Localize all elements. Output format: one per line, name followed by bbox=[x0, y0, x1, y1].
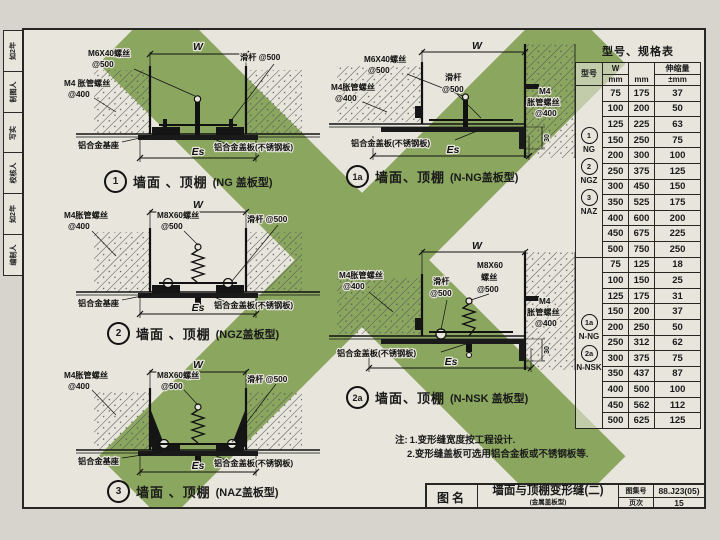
table-cell: 400 bbox=[603, 382, 629, 398]
table-cell: 75 bbox=[655, 132, 701, 148]
anchor-spacing-label: @400 bbox=[68, 90, 90, 99]
title-block-name-label: 图名 bbox=[427, 485, 478, 509]
table-cell: 125 bbox=[629, 257, 655, 273]
caption-type: (N-NG盖板型) bbox=[450, 169, 518, 185]
scanned-atlas-page: 如2年 制图人 写实 校核人 如2年 编制人 bbox=[0, 0, 720, 540]
dim-30-label: 30 bbox=[544, 134, 551, 142]
screw-spacing-label: @500 bbox=[477, 285, 499, 294]
col-header-stretch-label: 伸缩量 bbox=[666, 64, 690, 73]
screw-spacing-label: @500 bbox=[161, 222, 183, 231]
detail-2-drawing: W Es M4胀管螺丝 @400 M8X60螺丝 @500 滑杆 @500 铝合… bbox=[64, 198, 332, 320]
table-cell: 112 bbox=[655, 397, 701, 413]
table-cell: 63 bbox=[655, 117, 701, 133]
table-cell: 37 bbox=[655, 304, 701, 320]
table-cell: 525 bbox=[629, 195, 655, 211]
note-line-2: 2.变形缝盖板可选用铝合金板或不锈钢板等. bbox=[407, 448, 663, 462]
slider-label: 滑杆 bbox=[445, 72, 462, 82]
atlas-row: 图集号 88.J23(05) bbox=[619, 485, 704, 498]
table-cell: 250 bbox=[655, 241, 701, 257]
slider-spacing-label: @500 bbox=[442, 85, 464, 94]
col-header-mm: mm bbox=[629, 63, 655, 86]
cover-label: 铝合金盖板(不锈钢板) bbox=[337, 348, 416, 358]
table-cell: 200 bbox=[629, 101, 655, 117]
table-cell: 200 bbox=[629, 304, 655, 320]
caption-text: 墙面 、顶棚 bbox=[133, 172, 208, 191]
signature-text: 制图人 bbox=[8, 81, 18, 102]
table-cell: 50 bbox=[655, 319, 701, 335]
caption-text: 墙面、顶棚 bbox=[375, 167, 445, 186]
table-cell: 562 bbox=[629, 397, 655, 413]
table-cell: 125 bbox=[603, 288, 629, 304]
table-cell: 150 bbox=[655, 179, 701, 195]
page-number-label: 页次 bbox=[619, 498, 654, 510]
model-code: N-NSK bbox=[576, 363, 602, 372]
caption-text: 墙面 、顶棚 bbox=[136, 482, 211, 501]
table-group-2: 1aN-NG2aN-NSK751251810015025125175311502… bbox=[576, 257, 701, 429]
detail-2a-drawing: W Es 30 M4胀管螺丝 @400 滑杆 @500 M8X60 螺丝 @50… bbox=[329, 242, 584, 380]
cover-label: 铝合金盖板(不锈钢板) bbox=[214, 300, 293, 310]
anchor-left-label: M4胀管螺丝 bbox=[339, 270, 383, 280]
table-cell: 75 bbox=[603, 86, 629, 102]
signature-cell: 制图人 bbox=[4, 72, 22, 113]
table-group-1: 1NG2NGZ3NAZ75175371002005012522563150250… bbox=[576, 86, 701, 258]
table-cell: 75 bbox=[655, 351, 701, 367]
detail-number-badge: 3 bbox=[107, 480, 130, 503]
slider-spacing-label: @500 bbox=[430, 289, 452, 298]
col-header-w-symbol: W bbox=[612, 64, 620, 73]
dim-w-label: W bbox=[193, 41, 204, 53]
table-cell: 250 bbox=[603, 335, 629, 351]
table-cell: 18 bbox=[655, 257, 701, 273]
detail-number-badge: 1a bbox=[346, 165, 369, 188]
model-circle-badge: 1a bbox=[581, 314, 598, 331]
dim-es-label: Es bbox=[192, 146, 205, 158]
table-cell: 75 bbox=[603, 257, 629, 273]
detail-1a-caption: 1a 墙面、顶棚 (N-NG盖板型) bbox=[346, 165, 518, 188]
model-circle-badge: 2a bbox=[581, 345, 598, 362]
detail-number-badge: 1 bbox=[104, 170, 127, 193]
anchor-left-label: M4胀管螺丝 bbox=[331, 82, 375, 92]
table-cell: 250 bbox=[629, 132, 655, 148]
table-cell: 150 bbox=[629, 273, 655, 289]
screw-spacing-label: @500 bbox=[92, 60, 114, 69]
title-block-title-cell: 墙面与顶棚变形缝(二) (金属盖板型) bbox=[478, 485, 619, 509]
notes-prefix: 注: bbox=[395, 434, 408, 448]
table-header-row: 型号 Wmm mm 伸缩量±mm bbox=[576, 63, 701, 86]
detail-number-badge: 2a bbox=[346, 386, 369, 409]
model-code: N-NG bbox=[576, 332, 602, 341]
table-cell: 350 bbox=[603, 195, 629, 211]
table-cell: 100 bbox=[603, 273, 629, 289]
table-cell: 150 bbox=[603, 304, 629, 320]
col-header-w: Wmm bbox=[603, 63, 629, 86]
table-cell: 100 bbox=[603, 101, 629, 117]
table-cell: 200 bbox=[603, 319, 629, 335]
atlas-number-value: 88.J23(05) bbox=[654, 485, 704, 497]
table-cell: 450 bbox=[629, 179, 655, 195]
table-cell: 175 bbox=[629, 86, 655, 102]
anchor-right-label: 胀管螺丝 bbox=[527, 307, 560, 317]
anchor-spacing-label: @400 bbox=[68, 222, 90, 231]
caption-type: (NG 盖板型) bbox=[213, 174, 273, 190]
screw-spacing-label: @500 bbox=[161, 382, 183, 391]
table-cell: 100 bbox=[655, 148, 701, 164]
col-header-stretch-unit: ±mm bbox=[655, 74, 700, 85]
table-cell: 300 bbox=[603, 351, 629, 367]
dim-w-label: W bbox=[193, 199, 204, 211]
signature-cell: 如2年 bbox=[4, 31, 22, 72]
slider-label: 滑杆 bbox=[433, 276, 450, 286]
detail-3-drawing: W Es M4胀管螺丝 @400 M8X60螺丝 @500 滑杆 @500 铝合… bbox=[64, 360, 332, 478]
detail-1a-drawing: W Es 30 M6X40螺丝 @500 M4胀管螺丝 @400 滑杆 @500… bbox=[329, 40, 579, 165]
atlas-number-label: 图集号 bbox=[619, 485, 654, 497]
screw-label: M6X40螺丝 bbox=[88, 48, 130, 58]
notes: 注: 1.变形缝宽度按工程设计. 2.变形缝盖板可选用铝合金板或不锈钢板等. bbox=[395, 434, 663, 462]
table-cell: 175 bbox=[655, 195, 701, 211]
screw-label: M8X60 bbox=[477, 261, 503, 270]
model-code: NGZ bbox=[576, 176, 602, 185]
table-cell: 25 bbox=[655, 273, 701, 289]
anchor-right-label: M4 bbox=[539, 87, 551, 96]
caption-type: (NGZ盖板型) bbox=[216, 326, 280, 342]
model-label-cell: 1NG2NGZ3NAZ bbox=[576, 86, 603, 258]
table-cell: 500 bbox=[603, 241, 629, 257]
note-line-1: 1.变形缝宽度按工程设计. bbox=[395, 434, 663, 448]
model-code: NAZ bbox=[576, 207, 602, 216]
table-cell: 31 bbox=[655, 288, 701, 304]
page-row: 页次 15 bbox=[619, 498, 704, 510]
table-cell: 100 bbox=[655, 382, 701, 398]
slider-label: 滑杆 @500 bbox=[247, 214, 288, 224]
detail-number-badge: 2 bbox=[107, 322, 130, 345]
caption-type: (N-NSK 盖板型) bbox=[450, 390, 528, 406]
table-row: 1aN-NG2aN-NSK7512518 bbox=[576, 257, 701, 273]
dim-w-label: W bbox=[193, 359, 204, 371]
dim-30-label: 30 bbox=[544, 346, 551, 354]
col-header-model: 型号 bbox=[576, 63, 603, 86]
anchor-label: M4 胀管螺丝 bbox=[64, 78, 110, 88]
table-cell: 225 bbox=[655, 226, 701, 242]
signature-text: 校核人 bbox=[8, 163, 18, 184]
model-label-cell: 1aN-NG2aN-NSK bbox=[576, 257, 603, 429]
spec-table-panel: 型号、规格表 型号 Wmm mm 伸缩量±mm 1NG2NGZ3NAZ75175… bbox=[575, 43, 701, 429]
anchor-spacing-label: @400 bbox=[68, 382, 90, 391]
cover-label: 铝合金盖板(不锈钢板) bbox=[214, 458, 293, 468]
anchor-right-spacing-label: @400 bbox=[535, 109, 557, 118]
signature-cell: 编制人 bbox=[4, 235, 22, 275]
dim-es-label: Es bbox=[447, 144, 460, 156]
table-cell: 300 bbox=[629, 148, 655, 164]
spec-table-title: 型号、规格表 bbox=[575, 43, 701, 59]
anchor-right-label: 胀管螺丝 bbox=[527, 97, 560, 107]
col-header-w-unit: mm bbox=[603, 74, 628, 85]
dim-w-label: W bbox=[472, 40, 483, 52]
col-header-stretch: 伸缩量±mm bbox=[655, 63, 701, 86]
slider-label: 滑杆 @500 bbox=[247, 374, 288, 384]
table-cell: 437 bbox=[629, 366, 655, 382]
screw-label: M8X60螺丝 bbox=[157, 370, 199, 380]
table-cell: 375 bbox=[629, 163, 655, 179]
model-circle-badge: 1 bbox=[581, 127, 598, 144]
screw-label: M6X40螺丝 bbox=[364, 54, 406, 64]
spec-table: 型号 Wmm mm 伸缩量±mm 1NG2NGZ3NAZ751753710020… bbox=[575, 62, 701, 429]
table-cell: 175 bbox=[629, 288, 655, 304]
slider-label: 滑杆 @500 bbox=[240, 52, 281, 62]
caption-type: (NAZ盖板型) bbox=[216, 484, 279, 500]
dim-w-label: W bbox=[472, 240, 483, 252]
signature-cell: 如2年 bbox=[4, 194, 22, 235]
dim-es-label: Es bbox=[192, 302, 205, 314]
model-code: NG bbox=[576, 145, 602, 154]
table-cell: 450 bbox=[603, 226, 629, 242]
drawing-subtitle: (金属盖板型) bbox=[530, 497, 567, 508]
table-cell: 125 bbox=[655, 163, 701, 179]
signature-text: 编制人 bbox=[8, 245, 18, 266]
table-cell: 250 bbox=[629, 319, 655, 335]
detail-1-caption: 1 墙面 、顶棚 (NG 盖板型) bbox=[104, 170, 273, 193]
table-cell: 312 bbox=[629, 335, 655, 351]
anchor-left-spacing-label: @400 bbox=[335, 94, 357, 103]
page-number-value: 15 bbox=[654, 498, 704, 510]
table-cell: 450 bbox=[603, 397, 629, 413]
base-label: 铝合金基座 bbox=[78, 140, 120, 150]
table-cell: 225 bbox=[629, 117, 655, 133]
anchor-label: M4胀管螺丝 bbox=[64, 210, 108, 220]
detail-1-drawing: W Es M6X40螺丝 @500 滑杆 @500 M4 胀管螺丝 @400 铝… bbox=[64, 36, 332, 170]
dim-es-label: Es bbox=[192, 460, 205, 472]
anchor-label: M4胀管螺丝 bbox=[64, 370, 108, 380]
table-cell: 625 bbox=[629, 413, 655, 429]
anchor-right-label: M4 bbox=[539, 297, 551, 306]
table-cell: 300 bbox=[603, 179, 629, 195]
caption-text: 墙面 、顶棚 bbox=[136, 324, 211, 343]
base-label: 铝合金基座 bbox=[78, 298, 120, 308]
signature-cell: 写实 bbox=[4, 113, 22, 154]
drawing-title: 墙面与顶棚变形缝(二) bbox=[492, 486, 603, 497]
anchor-left-spacing-label: @400 bbox=[343, 282, 365, 291]
table-cell: 200 bbox=[603, 148, 629, 164]
screw-spacing-label: @500 bbox=[368, 66, 390, 75]
signature-text: 如2年 bbox=[8, 42, 18, 60]
detail-2a-caption: 2a 墙面、顶棚 (N-NSK 盖板型) bbox=[346, 386, 528, 409]
table-cell: 150 bbox=[603, 132, 629, 148]
dim-es-label: Es bbox=[445, 356, 458, 368]
table-cell: 375 bbox=[629, 351, 655, 367]
table-cell: 500 bbox=[629, 382, 655, 398]
cover-label: 铝合金盖板(不锈钢板) bbox=[351, 138, 430, 148]
title-block-right: 图集号 88.J23(05) 页次 15 bbox=[619, 485, 704, 509]
table-cell: 125 bbox=[603, 117, 629, 133]
title-block: 图名 墙面与顶棚变形缝(二) (金属盖板型) 图集号 88.J23(05) 页次… bbox=[425, 483, 706, 509]
table-cell: 125 bbox=[655, 413, 701, 429]
table-cell: 250 bbox=[603, 163, 629, 179]
screw-label: M8X60螺丝 bbox=[157, 210, 199, 220]
table-cell: 50 bbox=[655, 101, 701, 117]
signature-cell: 校核人 bbox=[4, 153, 22, 194]
table-cell: 750 bbox=[629, 241, 655, 257]
table-cell: 675 bbox=[629, 226, 655, 242]
table-cell: 62 bbox=[655, 335, 701, 351]
signature-text: 写实 bbox=[8, 126, 18, 140]
detail-3-caption: 3 墙面 、顶棚 (NAZ盖板型) bbox=[107, 480, 279, 503]
table-cell: 600 bbox=[629, 210, 655, 226]
table-cell: 87 bbox=[655, 366, 701, 382]
table-cell: 37 bbox=[655, 86, 701, 102]
drawing-frame: W Es M6X40螺丝 @500 滑杆 @500 M4 胀管螺丝 @400 铝… bbox=[22, 28, 706, 509]
screw-label: 螺丝 bbox=[481, 272, 497, 282]
model-circle-badge: 2 bbox=[581, 158, 598, 175]
signature-strip: 如2年 制图人 写实 校核人 如2年 编制人 bbox=[3, 30, 23, 276]
table-cell: 400 bbox=[603, 210, 629, 226]
detail-2-caption: 2 墙面 、顶棚 (NGZ盖板型) bbox=[107, 322, 279, 345]
cover-label: 铝合金盖板(不锈钢板) bbox=[214, 142, 293, 152]
table-row: 1NG2NGZ3NAZ7517537 bbox=[576, 86, 701, 102]
table-cell: 350 bbox=[603, 366, 629, 382]
table-cell: 500 bbox=[603, 413, 629, 429]
base-label: 铝合金基座 bbox=[78, 456, 120, 466]
anchor-right-spacing-label: @400 bbox=[535, 319, 557, 328]
model-circle-badge: 3 bbox=[581, 189, 598, 206]
table-cell: 200 bbox=[655, 210, 701, 226]
caption-text: 墙面、顶棚 bbox=[375, 388, 445, 407]
signature-text: 如2年 bbox=[8, 205, 18, 223]
